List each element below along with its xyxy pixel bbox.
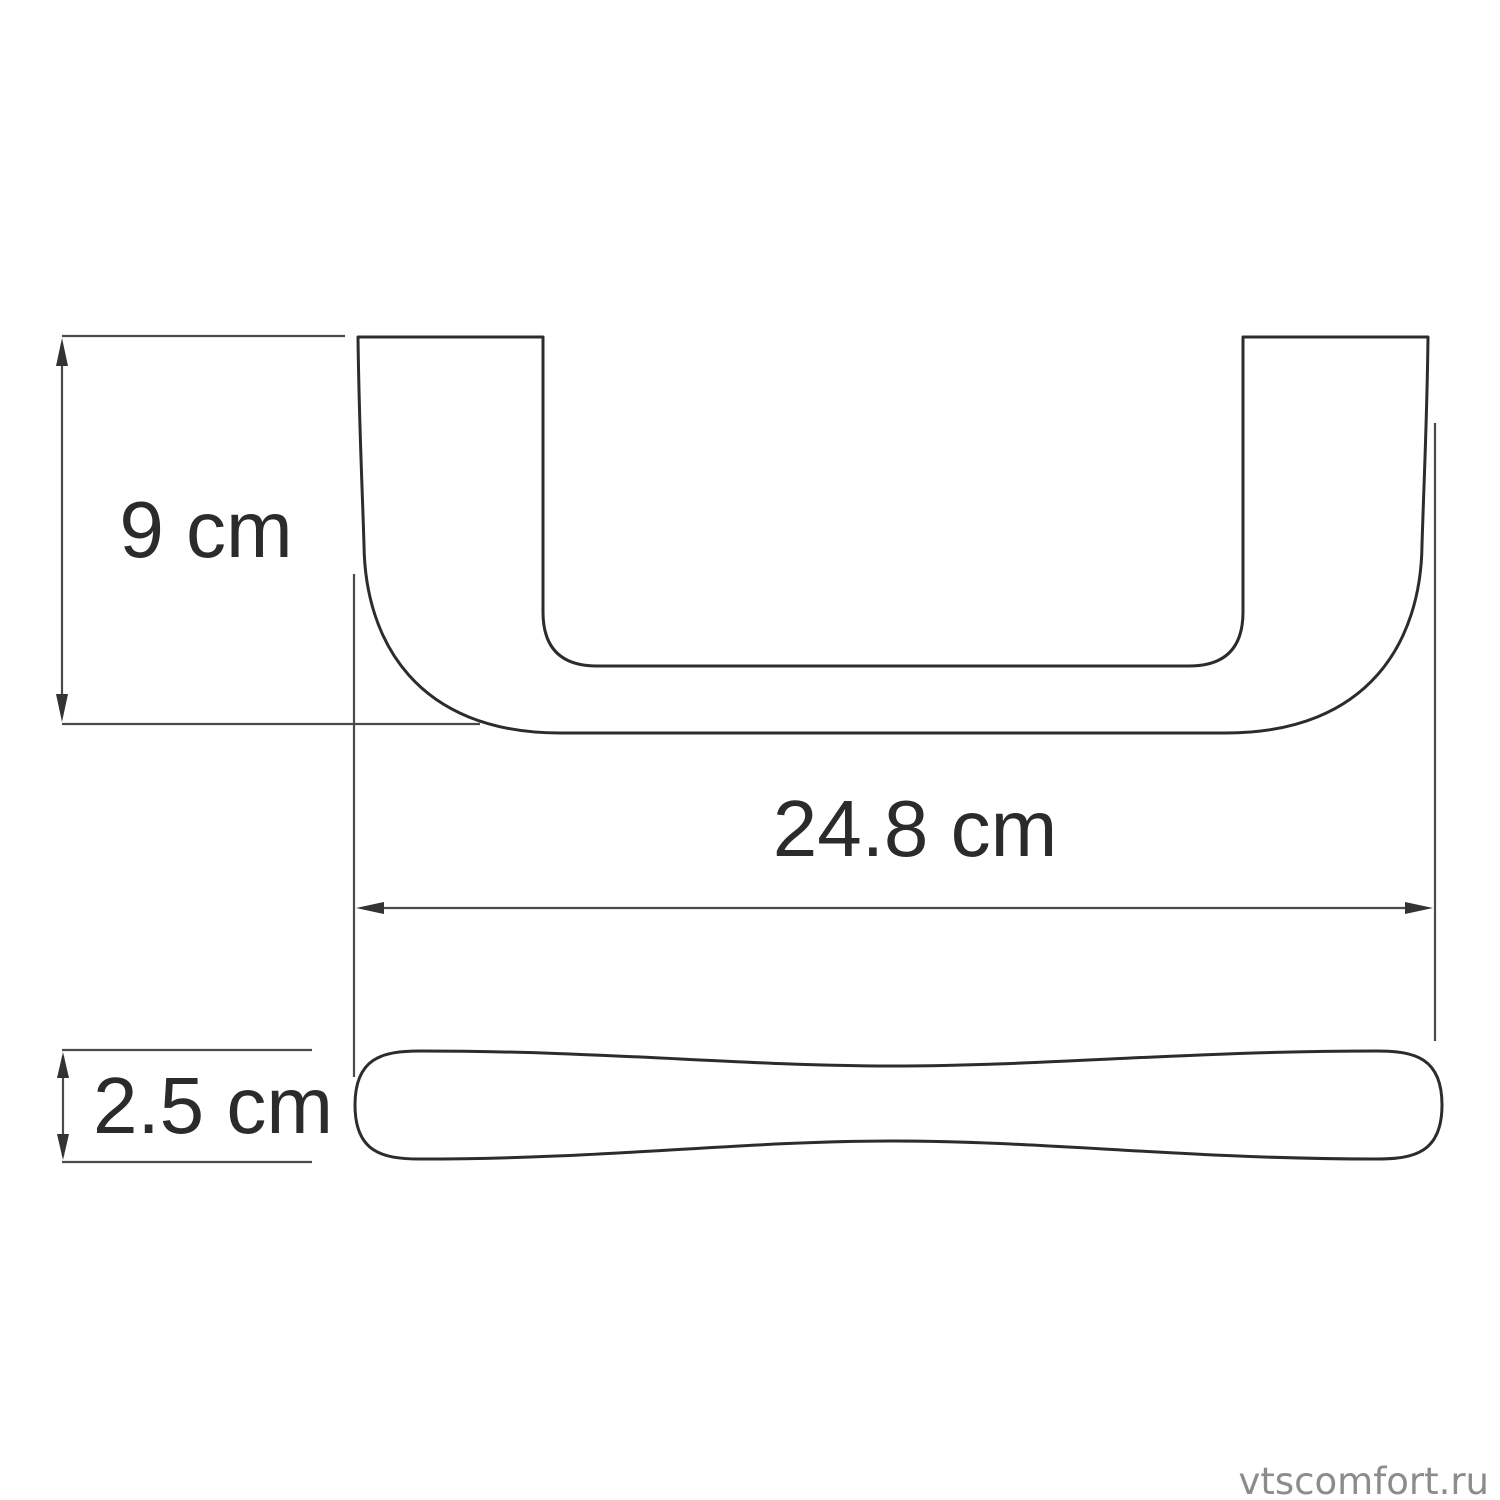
height-dimension-label: 9 cm bbox=[119, 485, 292, 574]
width-arrowhead-right bbox=[1405, 902, 1433, 914]
height-dimension: 9 cm bbox=[56, 336, 480, 724]
width-dimension-label: 24.8 cm bbox=[773, 784, 1058, 873]
depth-arrowhead-up bbox=[57, 1052, 69, 1078]
height-arrowhead-up bbox=[56, 338, 68, 366]
watermark-text: vtscomfort.ru bbox=[1238, 1460, 1489, 1500]
handle-front-view bbox=[358, 337, 1428, 733]
handle-bottom-view-outline bbox=[355, 1051, 1442, 1159]
technical-drawing-canvas: 9 cm 24.8 cm 2.5 cm vtscomfort.ru bbox=[0, 0, 1500, 1500]
handle-bottom-view bbox=[355, 1051, 1442, 1159]
width-arrowhead-left bbox=[356, 902, 384, 914]
depth-arrowhead-down bbox=[57, 1134, 69, 1160]
width-dimension: 24.8 cm bbox=[354, 423, 1435, 1077]
height-arrowhead-down bbox=[56, 694, 68, 722]
depth-dimension: 2.5 cm bbox=[57, 1050, 333, 1162]
depth-dimension-label: 2.5 cm bbox=[93, 1061, 333, 1150]
dimension-drawing-svg: 9 cm 24.8 cm 2.5 cm vtscomfort.ru bbox=[0, 0, 1500, 1500]
handle-front-view-outline bbox=[358, 337, 1428, 733]
